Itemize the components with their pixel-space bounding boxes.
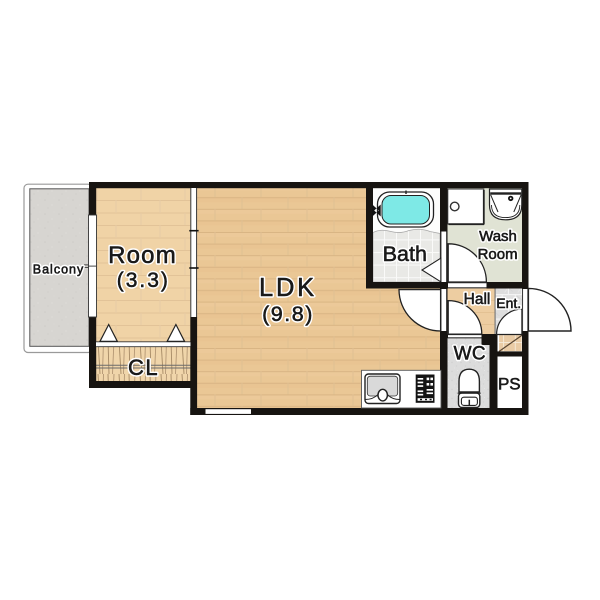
svg-text:WC: WC: [454, 344, 486, 365]
svg-text:Balcony: Balcony: [33, 263, 84, 277]
svg-text:Hall: Hall: [464, 291, 491, 308]
svg-text:(9.8): (9.8): [262, 302, 314, 326]
svg-text:(3.3): (3.3): [117, 269, 170, 292]
svg-text:Wash: Wash: [479, 228, 517, 245]
svg-text:Bath: Bath: [383, 242, 427, 266]
svg-text:CL: CL: [128, 355, 159, 380]
svg-text:Ent.: Ent.: [496, 295, 521, 311]
svg-text:LDK: LDK: [259, 274, 317, 302]
svg-text:Room: Room: [478, 246, 518, 263]
svg-text:Room: Room: [108, 242, 177, 269]
svg-text:PS: PS: [498, 375, 521, 394]
